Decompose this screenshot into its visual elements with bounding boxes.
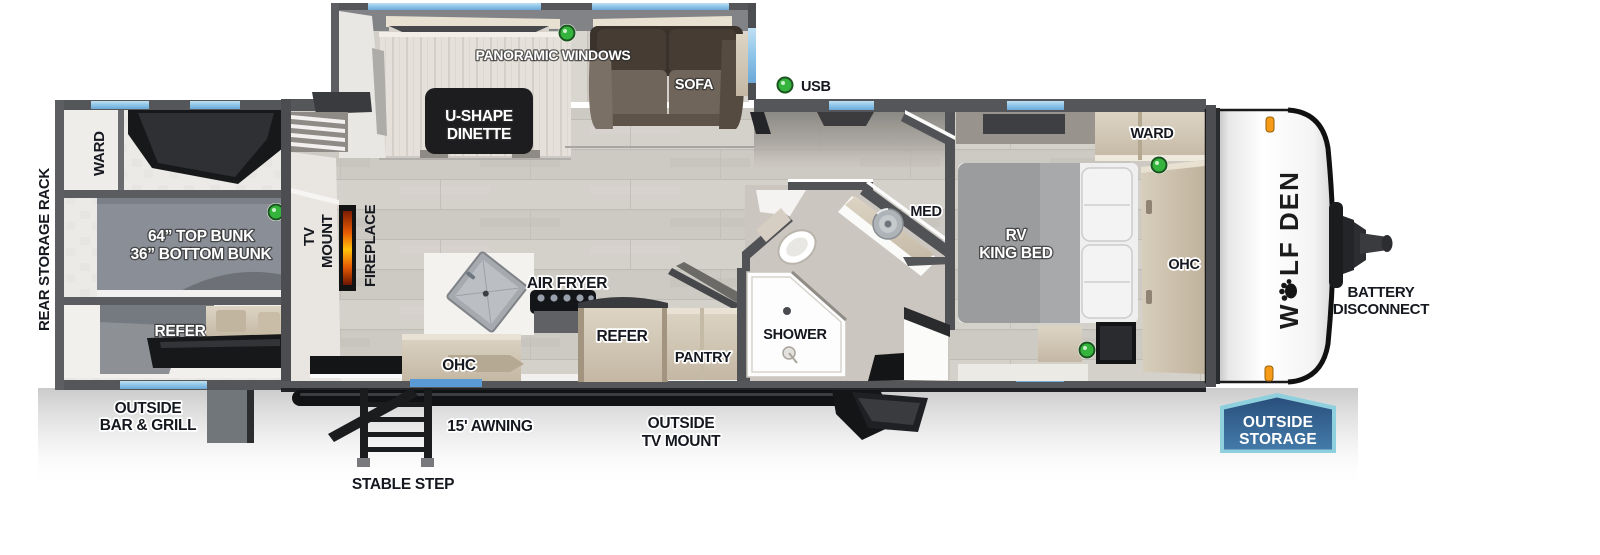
svg-text:TV MOUNT: TV MOUNT [642, 433, 721, 450]
svg-text:36” BOTTOM BUNK: 36” BOTTOM BUNK [131, 246, 273, 263]
svg-text:15' AWNING: 15' AWNING [447, 418, 533, 435]
svg-text:REFER: REFER [596, 328, 647, 345]
svg-text:WARD: WARD [91, 131, 108, 176]
svg-text:KING BED: KING BED [979, 245, 1052, 262]
svg-text:FIREPLACE: FIREPLACE [362, 204, 379, 287]
svg-text:PANORAMIC WINDOWS: PANORAMIC WINDOWS [476, 47, 631, 63]
svg-text:64” TOP BUNK: 64” TOP BUNK [148, 228, 255, 245]
svg-text:BAR & GRILL: BAR & GRILL [100, 417, 197, 434]
svg-text:REFER: REFER [154, 323, 205, 340]
svg-text:BATTERY: BATTERY [1347, 284, 1414, 301]
svg-text:OUTSIDE: OUTSIDE [648, 415, 715, 432]
svg-text:STORAGE: STORAGE [1239, 431, 1317, 448]
svg-text:MOUNT: MOUNT [319, 214, 336, 268]
svg-text:DINETTE: DINETTE [447, 126, 511, 143]
svg-text:W: W [1274, 302, 1304, 329]
svg-text:USB: USB [801, 79, 831, 95]
svg-text:RV: RV [1006, 227, 1028, 244]
svg-text:OHC: OHC [1168, 257, 1200, 273]
svg-text:U-SHAPE: U-SHAPE [445, 108, 513, 125]
svg-text:OUTSIDE: OUTSIDE [1243, 414, 1313, 431]
svg-text:REAR STORAGE RACK: REAR STORAGE RACK [36, 168, 53, 331]
svg-text:MED: MED [910, 204, 941, 220]
svg-text:DISCONNECT: DISCONNECT [1333, 301, 1429, 318]
svg-text:STABLE STEP: STABLE STEP [352, 476, 454, 493]
svg-text:TV: TV [301, 227, 318, 246]
svg-text:LF DEN: LF DEN [1274, 170, 1304, 276]
svg-text:SHOWER: SHOWER [763, 327, 827, 343]
svg-text:SOFA: SOFA [675, 77, 714, 93]
svg-text:OHC: OHC [442, 357, 476, 374]
svg-text:PANTRY: PANTRY [675, 350, 732, 366]
svg-text:OUTSIDE: OUTSIDE [115, 400, 182, 417]
svg-text:AIR FRYER: AIR FRYER [527, 275, 607, 292]
svg-text:WARD: WARD [1130, 126, 1173, 142]
